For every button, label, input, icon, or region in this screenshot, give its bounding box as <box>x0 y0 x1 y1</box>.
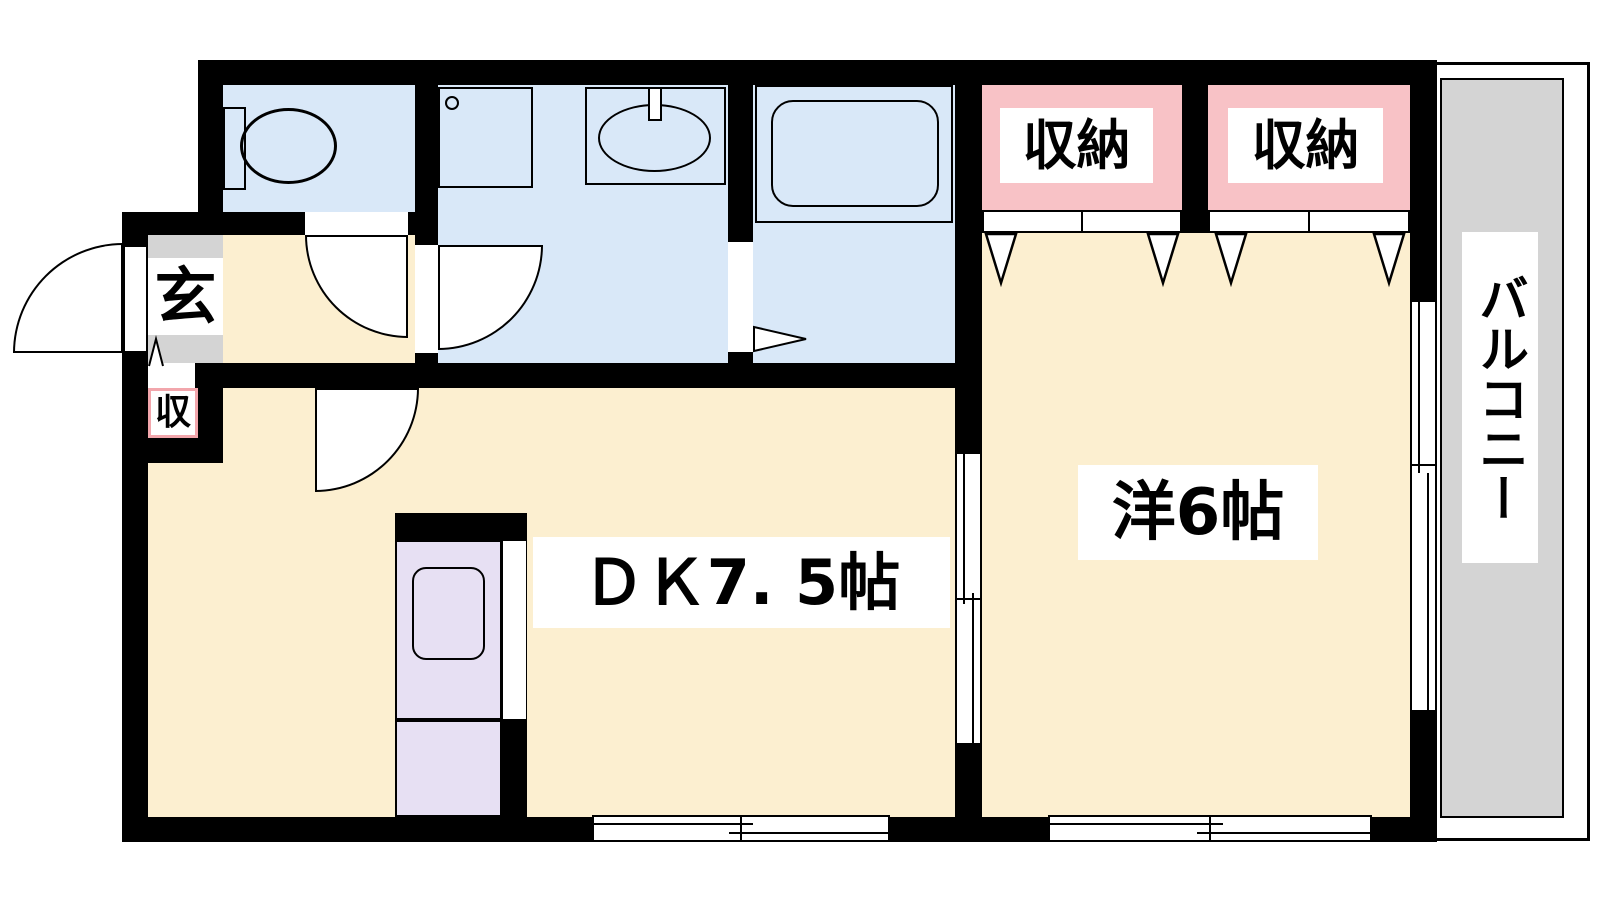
folding-door-icon <box>984 233 1018 285</box>
bathtub-icon <box>771 100 939 207</box>
kitchen-counter-edge <box>502 540 527 720</box>
door-opening-toilet <box>305 212 408 235</box>
floor-plan: 玄 収 収納 収納 ＤＫ7. 5帖 洋6帖 バルコニー <box>0 0 1600 900</box>
folding-door-icon <box>1214 233 1248 285</box>
kitchen-lower-cabinet <box>395 720 502 817</box>
wall <box>955 745 982 842</box>
balcony-label: バルコニー <box>1462 232 1538 563</box>
kitchen-lower-black <box>502 720 527 817</box>
sliding-window-icon <box>1410 300 1437 712</box>
entrance-label: 玄 <box>148 258 223 335</box>
shoe-storage-swing-icon <box>146 336 168 368</box>
wall <box>198 60 223 235</box>
sliding-window-icon <box>1048 815 1372 842</box>
door-swing-icon <box>13 243 123 353</box>
wall <box>1182 85 1208 233</box>
wall <box>122 438 223 463</box>
washer-faucet-dot <box>445 96 459 110</box>
wall <box>198 60 1410 85</box>
shoe-storage-label: 収 <box>148 388 198 438</box>
folding-door-icon <box>1372 233 1406 285</box>
closet-door-track <box>982 210 1182 233</box>
wall <box>122 212 223 235</box>
toilet-icon <box>240 108 337 184</box>
washbasin-tap <box>648 87 662 121</box>
door-opening-bathroom <box>728 242 753 352</box>
sliding-door-dk-western <box>955 452 982 745</box>
door-opening-washroom <box>415 245 438 353</box>
western-room-label: 洋6帖 <box>1078 465 1318 560</box>
folding-door-icon <box>1146 233 1180 285</box>
sliding-window-icon <box>592 815 890 842</box>
dining-kitchen-label: ＤＫ7. 5帖 <box>533 537 950 628</box>
kitchen-sink-icon <box>412 567 485 660</box>
bathroom-door-arrow-icon <box>753 324 809 354</box>
closet-door-track <box>1208 210 1410 233</box>
closet-label-right: 収納 <box>1228 108 1383 183</box>
floor-dk-left-extension <box>148 463 223 817</box>
wall <box>955 60 982 452</box>
kitchen-counter-top-band <box>395 513 527 540</box>
entrance-door-leaf <box>123 245 148 353</box>
closet-label-left: 収納 <box>1000 108 1153 183</box>
wall <box>223 363 982 388</box>
